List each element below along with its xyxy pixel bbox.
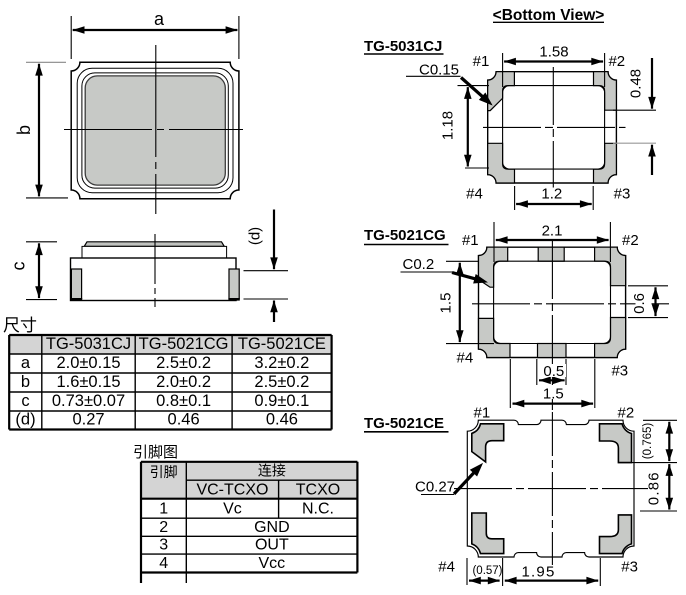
svg-text:c: c	[21, 392, 29, 410]
svg-text:#4: #4	[466, 186, 483, 203]
svg-text:#3: #3	[611, 362, 628, 379]
svg-text:1.2: 1.2	[541, 186, 562, 203]
svg-text:(0.57): (0.57)	[472, 565, 502, 577]
svg-text:0.46: 0.46	[266, 411, 298, 429]
svg-text:(d): (d)	[247, 227, 264, 245]
svg-text:#2: #2	[608, 53, 625, 70]
svg-text:1: 1	[159, 501, 168, 518]
svg-text:1.5: 1.5	[438, 293, 455, 314]
svg-text:#1: #1	[474, 405, 491, 422]
svg-text:0.73±0.07: 0.73±0.07	[52, 392, 125, 410]
svg-text:TG-5021CG: TG-5021CG	[139, 335, 229, 353]
svg-text:0.46: 0.46	[168, 411, 200, 429]
svg-text:0.86: 0.86	[645, 471, 662, 505]
svg-text:3.2±0.2: 3.2±0.2	[254, 354, 309, 372]
svg-text:2.5±0.2: 2.5±0.2	[156, 354, 211, 372]
svg-text:3: 3	[159, 537, 168, 554]
svg-text:<Bottom View>: <Bottom View>	[493, 7, 605, 24]
svg-text:2.5±0.2: 2.5±0.2	[254, 373, 309, 391]
svg-text:0.6: 0.6	[631, 293, 648, 314]
svg-text:#1: #1	[473, 53, 490, 70]
svg-text:2.0±0.2: 2.0±0.2	[156, 373, 211, 391]
svg-text:TG-5021CG: TG-5021CG	[364, 227, 446, 244]
svg-text:连接: 连接	[258, 463, 286, 479]
svg-text:#3: #3	[621, 559, 638, 576]
svg-text:引脚: 引脚	[150, 464, 178, 480]
svg-text:OUT: OUT	[255, 537, 289, 554]
svg-text:#3: #3	[614, 186, 631, 203]
svg-text:(d): (d)	[15, 411, 35, 429]
svg-text:1.6±0.15: 1.6±0.15	[56, 373, 120, 391]
svg-text:a: a	[21, 354, 31, 372]
svg-text:#1: #1	[462, 232, 479, 249]
svg-text:#2: #2	[618, 405, 635, 422]
svg-text:#2: #2	[622, 232, 639, 249]
svg-text:C0.15: C0.15	[419, 62, 459, 79]
svg-text:TG-5021CE: TG-5021CE	[364, 415, 444, 432]
svg-text:C0.27: C0.27	[415, 479, 455, 496]
svg-text:1.5: 1.5	[543, 386, 564, 403]
svg-text:a: a	[154, 9, 165, 29]
svg-text:1.95: 1.95	[522, 563, 556, 580]
svg-text:尺寸: 尺寸	[3, 316, 37, 335]
svg-text:2.1: 2.1	[542, 223, 563, 240]
svg-text:0.48: 0.48	[628, 69, 645, 98]
svg-text:4: 4	[159, 555, 168, 572]
svg-text:N.C.: N.C.	[302, 501, 334, 518]
svg-text:#4: #4	[438, 559, 455, 576]
svg-text:引脚图: 引脚图	[133, 444, 178, 461]
svg-text:0.8±0.1: 0.8±0.1	[156, 392, 211, 410]
svg-text:Vc: Vc	[223, 501, 242, 518]
svg-text:0.5: 0.5	[543, 363, 564, 380]
svg-text:TG-5021CE: TG-5021CE	[238, 335, 326, 353]
svg-text:TG-5031CJ: TG-5031CJ	[364, 38, 442, 55]
svg-text:VC-TCXO: VC-TCXO	[196, 481, 268, 498]
svg-text:2.0±0.15: 2.0±0.15	[56, 354, 120, 372]
svg-text:1.58: 1.58	[539, 44, 568, 61]
svg-text:c: c	[9, 262, 29, 271]
svg-text:0.27: 0.27	[72, 411, 104, 429]
svg-text:C0.2: C0.2	[403, 256, 435, 273]
svg-text:0.9±0.1: 0.9±0.1	[254, 392, 309, 410]
svg-text:#4: #4	[457, 349, 474, 366]
svg-text:1.18: 1.18	[440, 111, 457, 140]
svg-text:GND: GND	[254, 519, 290, 536]
svg-text:b: b	[14, 125, 34, 135]
svg-text:TG-5031CJ: TG-5031CJ	[46, 335, 131, 353]
svg-text:TCXO: TCXO	[296, 481, 340, 498]
svg-text:b: b	[21, 373, 30, 391]
svg-text:2: 2	[159, 519, 168, 536]
svg-text:Vcc: Vcc	[259, 555, 286, 572]
svg-text:(0.765): (0.765)	[642, 423, 654, 460]
